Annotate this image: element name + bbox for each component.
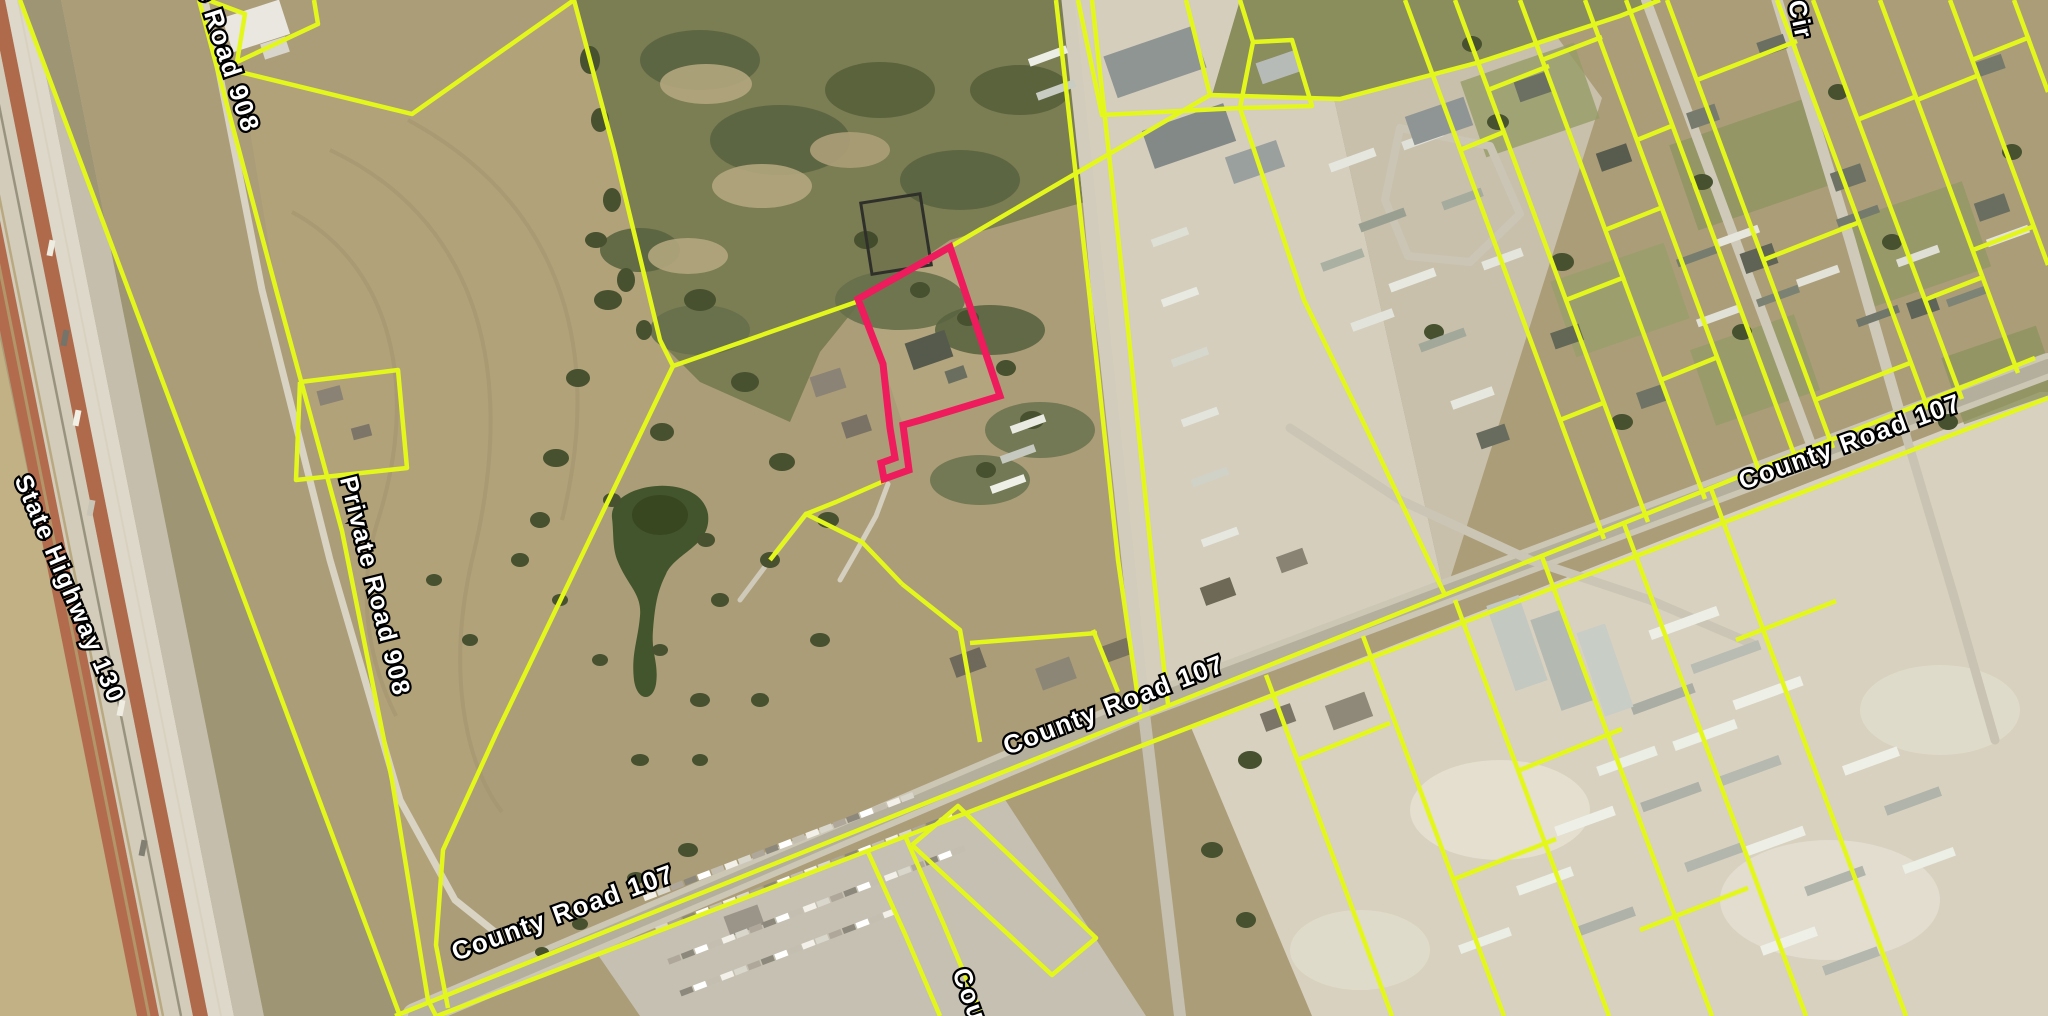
tree	[810, 633, 830, 647]
tree	[692, 754, 708, 766]
tree	[530, 512, 550, 528]
ground-blob	[1720, 840, 1940, 960]
ground-blob	[648, 238, 728, 274]
tree	[1236, 912, 1256, 928]
tree	[769, 453, 795, 471]
tree	[1201, 842, 1223, 858]
tree	[697, 533, 715, 547]
tree	[678, 843, 698, 857]
ground-blob	[825, 62, 935, 118]
tree	[652, 644, 668, 656]
tree	[650, 423, 674, 441]
tree	[462, 634, 478, 646]
ground-blob	[935, 305, 1045, 355]
tree	[631, 754, 649, 766]
tree	[731, 372, 759, 392]
tree	[585, 232, 607, 248]
tree	[543, 449, 569, 467]
tree	[566, 369, 590, 387]
ground-blob	[660, 64, 752, 104]
tree	[711, 593, 729, 607]
tree	[603, 188, 621, 212]
tree	[996, 360, 1016, 376]
pond-deep-area	[632, 495, 688, 535]
tree	[1238, 751, 1262, 769]
tree	[690, 693, 710, 707]
tree	[910, 282, 930, 298]
tree	[751, 693, 769, 707]
ground-blob	[712, 164, 812, 208]
terrain-layer	[0, 0, 2048, 1016]
tree	[511, 553, 529, 567]
ground-blob	[985, 402, 1095, 458]
tree	[617, 268, 635, 292]
tree	[684, 289, 716, 311]
ground-blob	[1410, 760, 1590, 860]
tree	[426, 574, 442, 586]
tree	[976, 462, 996, 478]
tree	[636, 320, 652, 340]
ground-blob	[810, 132, 890, 168]
ground-blob	[1290, 910, 1430, 990]
tree	[592, 654, 608, 666]
tree	[594, 290, 622, 310]
map-viewport[interactable]: Private Road 908State Highway 130Private…	[0, 0, 2048, 1016]
aerial-map-canvas[interactable]: Private Road 908State Highway 130Private…	[0, 0, 2048, 1016]
